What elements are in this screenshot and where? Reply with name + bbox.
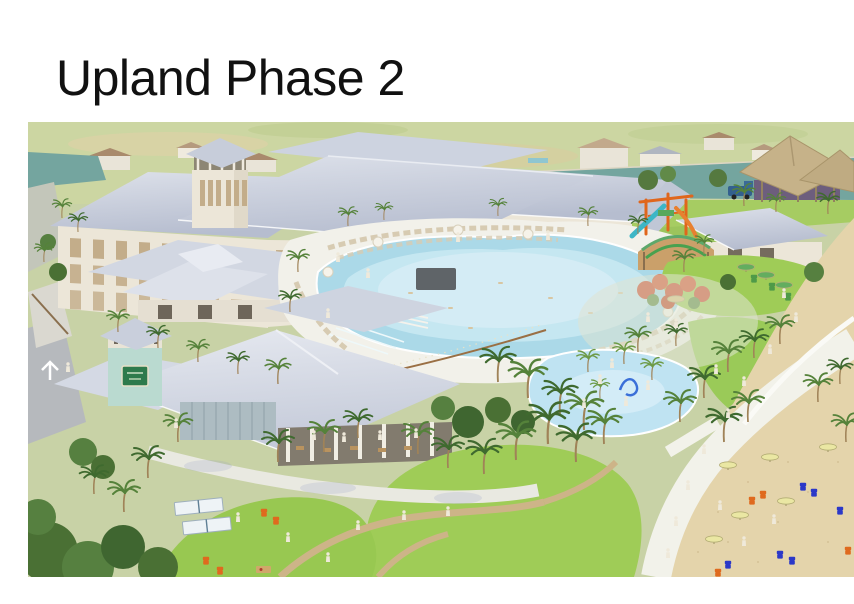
cupola-tower [186,138,256,228]
cornhole-boards [256,566,271,573]
slide-title: Upland Phase 2 [56,52,405,105]
presentation-slide: Upland Phase 2 [0,0,854,604]
pool-cabana-bar [416,268,456,290]
restaurant-sign [122,366,148,386]
resort-rendering-image [28,122,854,577]
